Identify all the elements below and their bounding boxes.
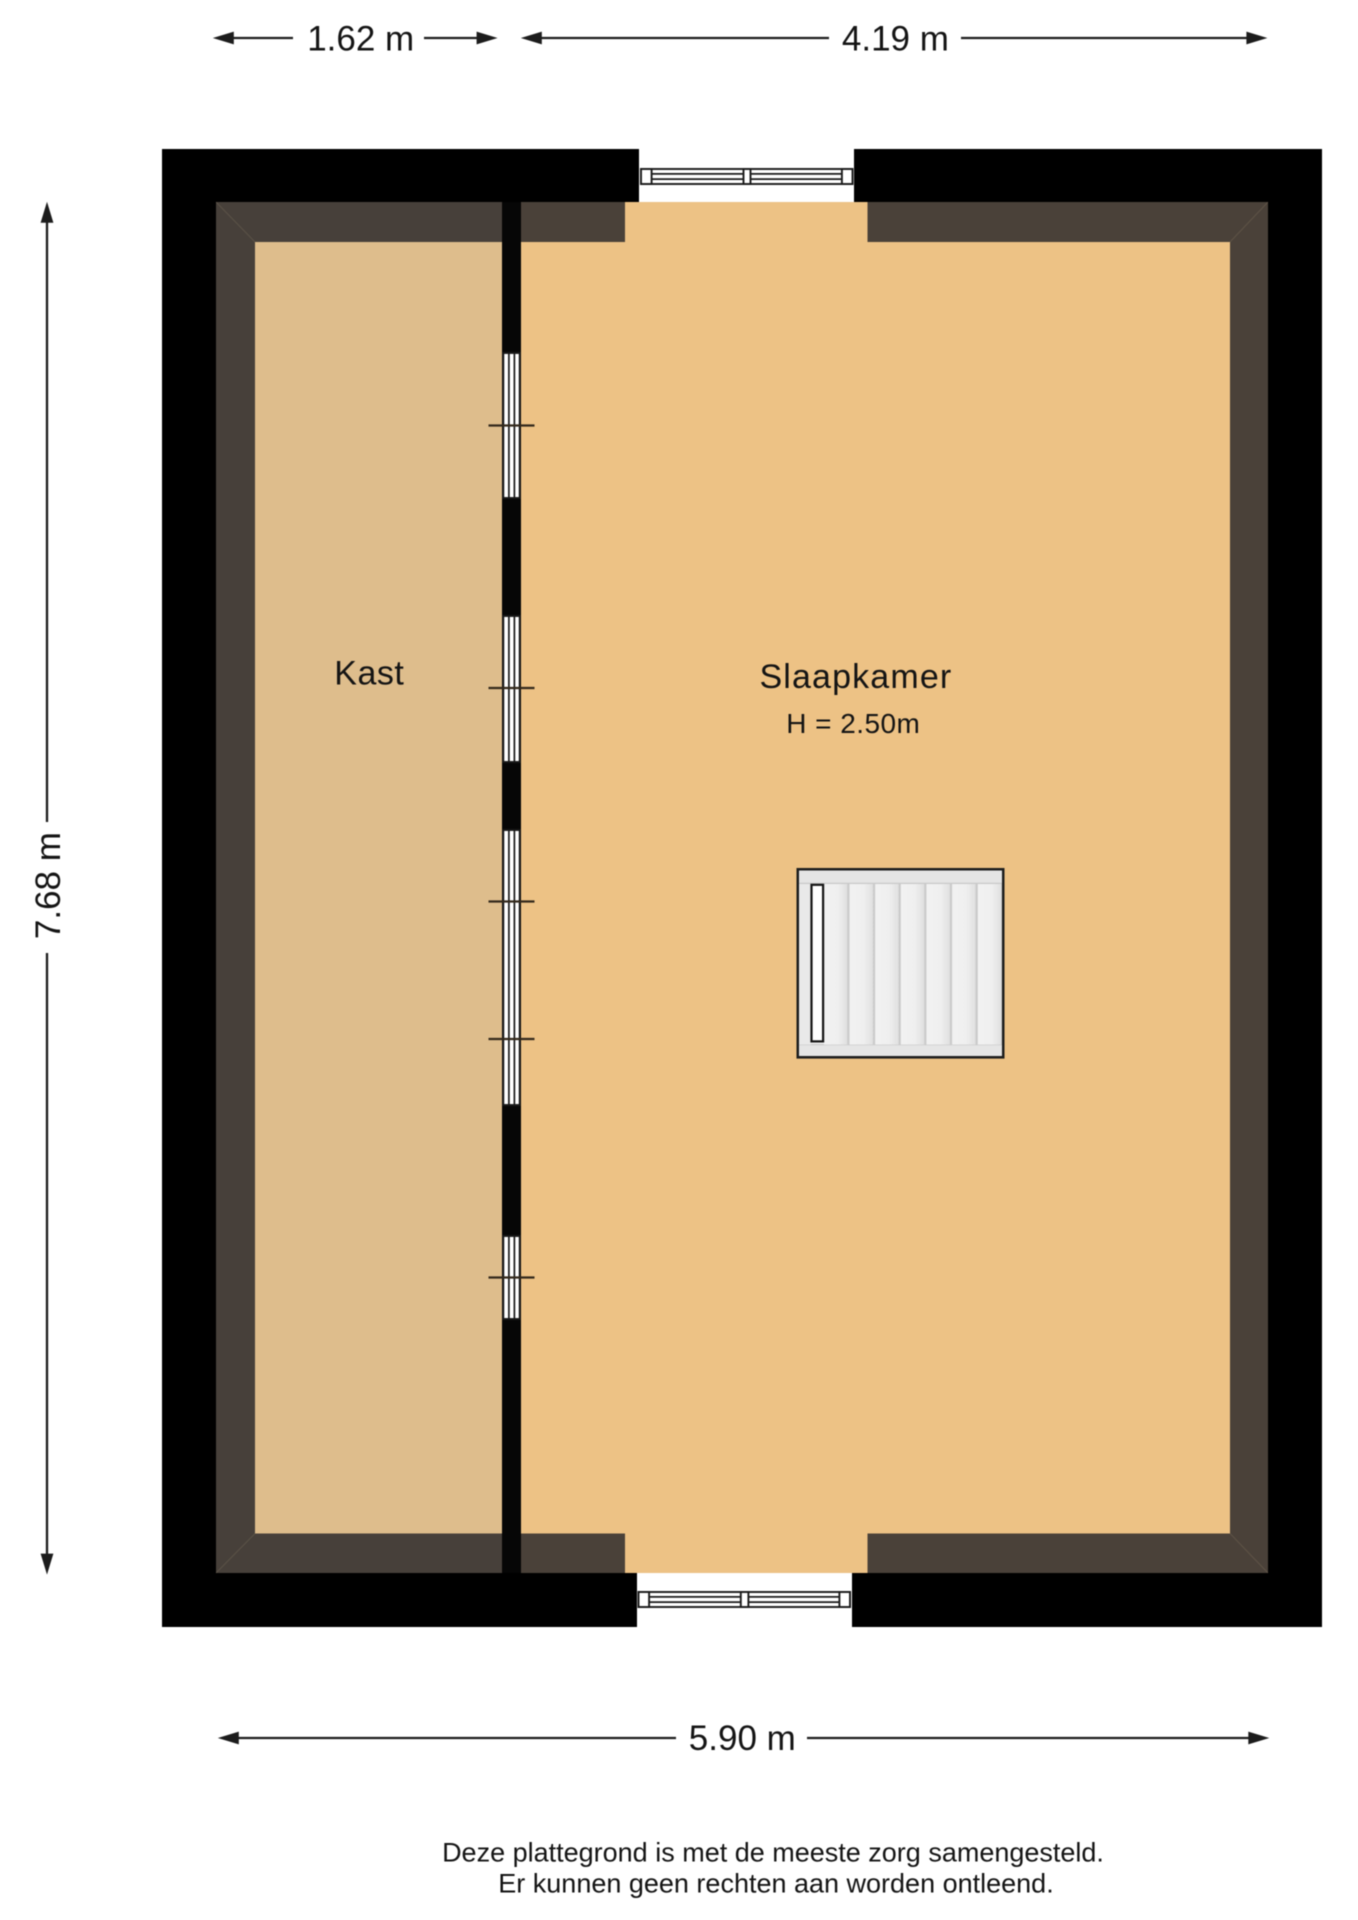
- svg-text:Slaapkamer: Slaapkamer: [759, 658, 952, 696]
- svg-text:5.90 m: 5.90 m: [689, 1719, 796, 1758]
- svg-text:4.19 m: 4.19 m: [842, 19, 949, 58]
- svg-text:H = 2.50m: H = 2.50m: [786, 708, 920, 739]
- svg-text:1.62 m: 1.62 m: [307, 19, 414, 58]
- svg-text:Deze plattegrond is met de mee: Deze plattegrond is met de meeste zorg s…: [442, 1838, 1104, 1868]
- svg-text:7.68 m: 7.68 m: [29, 832, 68, 939]
- svg-text:Er kunnen geen rechten aan wor: Er kunnen geen rechten aan worden ontlee…: [498, 1869, 1053, 1899]
- svg-text:Kast: Kast: [334, 655, 404, 693]
